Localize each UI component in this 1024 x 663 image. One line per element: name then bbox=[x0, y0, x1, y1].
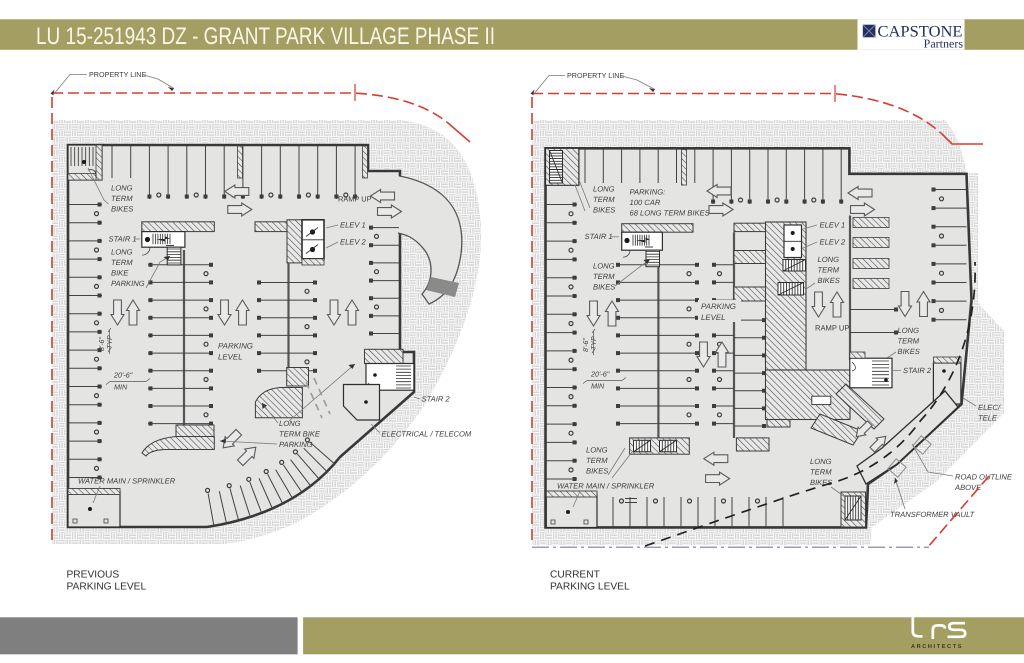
svg-text:ELEV 2: ELEV 2 bbox=[340, 238, 367, 247]
svg-text:ELEV 1: ELEV 1 bbox=[340, 221, 366, 230]
svg-text:LONGTERMBIKES: LONGTERMBIKES bbox=[898, 326, 920, 356]
svg-text:RAMP UP: RAMP UP bbox=[815, 324, 849, 333]
svg-text:PARKING LEVEL: PARKING LEVEL bbox=[550, 582, 630, 593]
svg-text:LONGTERMBIKES: LONGTERMBIKES bbox=[818, 255, 840, 285]
svg-text:WATER MAIN / SPRINKLER: WATER MAIN / SPRINKLER bbox=[557, 482, 655, 491]
svg-text:LONGTERMBIKES: LONGTERMBIKES bbox=[593, 185, 615, 215]
svg-text:STAIR 2: STAIR 2 bbox=[903, 366, 932, 375]
svg-text:TYP: TYP bbox=[591, 336, 598, 350]
svg-text:RAMP UP: RAMP UP bbox=[338, 195, 372, 204]
svg-text:PREVIOUS: PREVIOUS bbox=[67, 570, 120, 581]
svg-text:ELECTRICAL / TELECOM: ELECTRICAL / TELECOM bbox=[382, 430, 472, 439]
svg-text:ARCHITECTS: ARCHITECTS bbox=[911, 644, 963, 650]
svg-text:8'-6": 8'-6" bbox=[583, 338, 590, 352]
svg-text:STAIR 2: STAIR 2 bbox=[422, 395, 451, 404]
svg-text:LONGTERMBIKES: LONGTERMBIKES bbox=[586, 446, 608, 476]
svg-text:ELEV 2: ELEV 2 bbox=[820, 238, 847, 247]
svg-text:LU 15-251943 DZ - GRANT PARK V: LU 15-251943 DZ - GRANT PARK VILLAGE PHA… bbox=[36, 23, 495, 50]
svg-text:CURRENT: CURRENT bbox=[550, 570, 600, 581]
svg-text:PROPERTY LINE: PROPERTY LINE bbox=[567, 71, 624, 80]
svg-text:WATER MAIN / SPRINKLER: WATER MAIN / SPRINKLER bbox=[78, 477, 176, 486]
svg-text:8'-6": 8'-6" bbox=[99, 337, 106, 351]
svg-text:STAIR 1: STAIR 1 bbox=[585, 232, 613, 241]
svg-text:TRANSFORMER VAULT: TRANSFORMER VAULT bbox=[890, 510, 976, 519]
svg-text:LONGTERMBIKES: LONGTERMBIKES bbox=[593, 262, 615, 292]
svg-text:LONGTERMBIKES: LONGTERMBIKES bbox=[111, 184, 133, 214]
svg-text:PROPERTY LINE: PROPERTY LINE bbox=[89, 70, 146, 79]
svg-text:PARKING LEVEL: PARKING LEVEL bbox=[67, 582, 147, 593]
svg-text:TYP: TYP bbox=[107, 335, 114, 349]
svg-text:STAIR 1: STAIR 1 bbox=[109, 235, 137, 244]
svg-text:LONGTERMBIKES: LONGTERMBIKES bbox=[810, 457, 832, 487]
svg-text:Partners: Partners bbox=[924, 36, 964, 50]
svg-text:ELEV 1: ELEV 1 bbox=[820, 221, 846, 230]
